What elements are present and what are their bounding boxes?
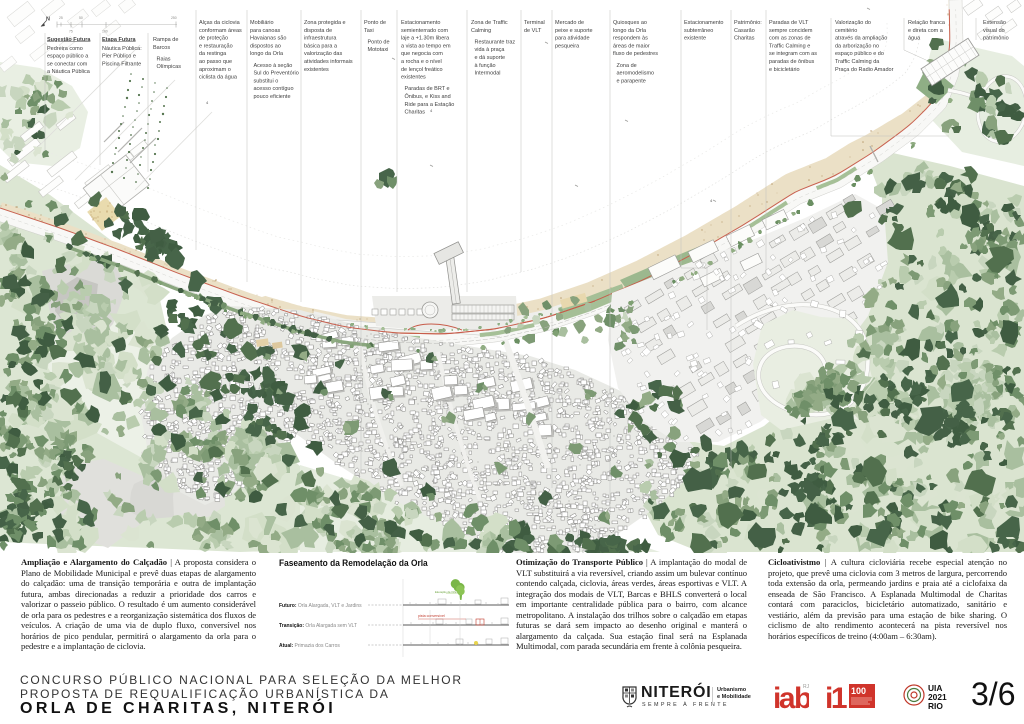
svg-text:N: N bbox=[46, 17, 50, 23]
svg-text:75: 75 bbox=[69, 30, 73, 34]
svg-text:Futuro: Orla Alargada, VLT e J: Futuro: Orla Alargada, VLT e Jardins bbox=[279, 603, 362, 609]
svg-text:RJ: RJ bbox=[803, 684, 809, 690]
svg-text:i1: i1 bbox=[827, 682, 847, 711]
svg-text:pista conversível: pista conversível bbox=[418, 614, 445, 618]
svg-text:100: 100 bbox=[851, 686, 866, 696]
svg-text:100: 100 bbox=[102, 30, 108, 34]
svg-text:25: 25 bbox=[59, 16, 63, 20]
svg-text:RIO: RIO bbox=[928, 701, 943, 711]
svg-text:ia: ia bbox=[775, 682, 796, 711]
svg-text:50: 50 bbox=[79, 16, 83, 20]
svg-text:Elevação da Orla: Elevação da Orla bbox=[435, 590, 457, 594]
svg-text:Atual: Primazia dos Carros: Atual: Primazia dos Carros bbox=[279, 643, 340, 649]
svg-text:Transição: Orla Alargada sem V: Transição: Orla Alargada sem VLT bbox=[279, 623, 357, 629]
svg-text:250: 250 bbox=[171, 16, 177, 20]
